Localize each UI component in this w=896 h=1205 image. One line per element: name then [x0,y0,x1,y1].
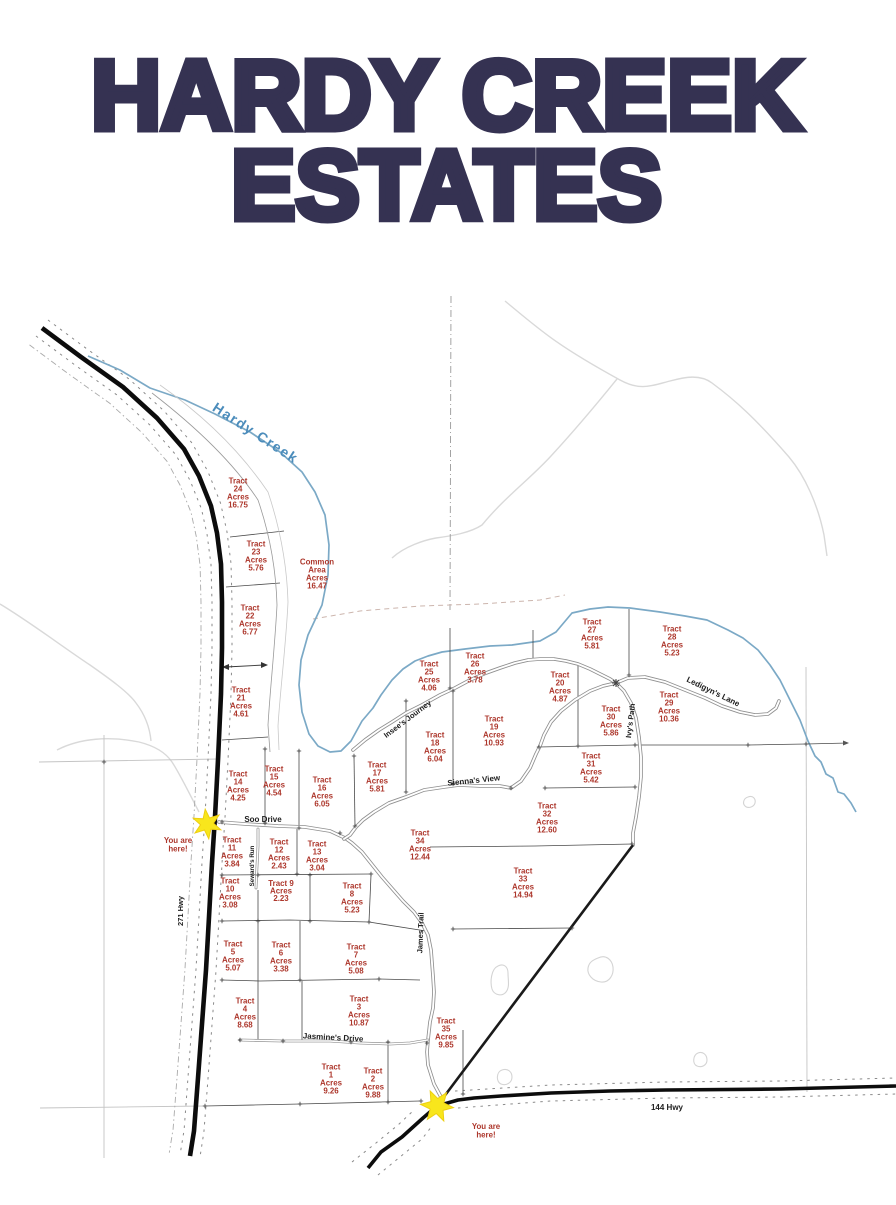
svg-text:Tract32Acres12.60: Tract32Acres12.60 [536,802,559,835]
svg-text:Seward's Run: Seward's Run [249,845,256,886]
svg-text:Tract24Acres16.75: Tract24Acres16.75 [227,477,250,510]
svg-text:Tract3Acres10.87: Tract3Acres10.87 [348,995,371,1028]
svg-text:144 Hwy: 144 Hwy [651,1103,684,1112]
svg-text:Tract34Acres12.44: Tract34Acres12.44 [409,829,432,862]
svg-text:271 Hwy: 271 Hwy [176,895,185,926]
svg-text:ESTATES: ESTATES [231,130,662,240]
svg-text:Tract33Acres14.94: Tract33Acres14.94 [512,867,535,900]
svg-text:James Trail: James Trail [415,912,425,953]
svg-text:Tract29Acres10.36: Tract29Acres10.36 [658,691,681,724]
svg-text:Tract19Acres10.93: Tract19Acres10.93 [483,715,506,748]
svg-text:Soo Drive: Soo Drive [244,815,282,824]
